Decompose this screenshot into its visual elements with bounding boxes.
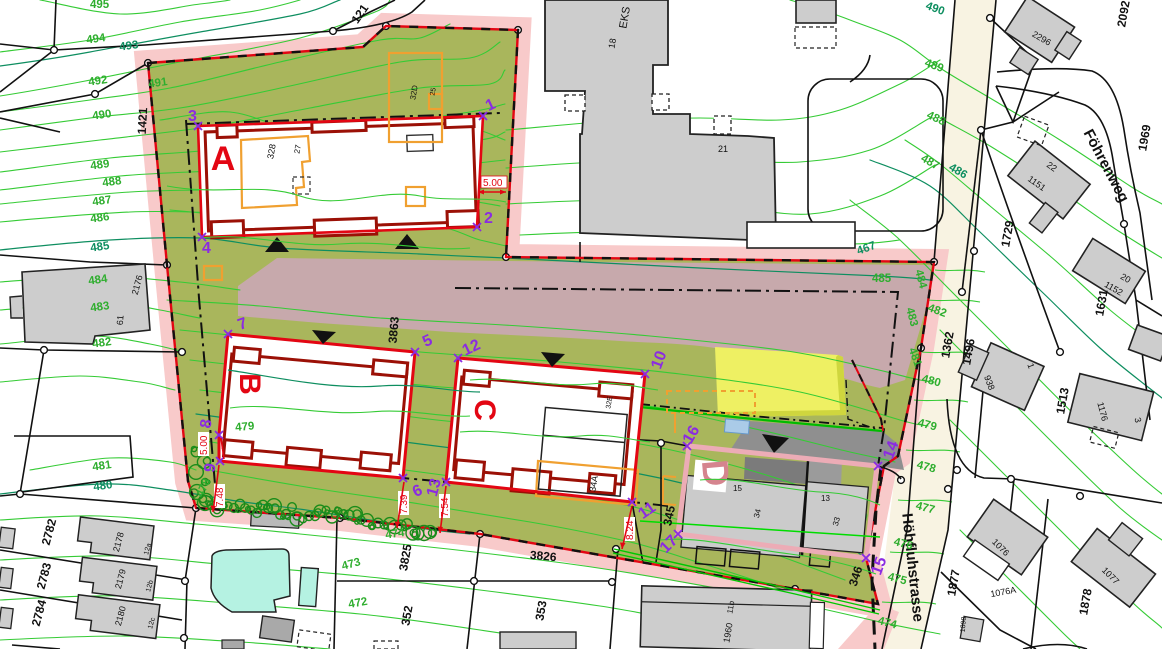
svg-text:3: 3 — [188, 108, 197, 125]
svg-text:2: 2 — [484, 210, 493, 227]
svg-text:5.00: 5.00 — [199, 435, 210, 455]
svg-text:A: A — [211, 140, 236, 178]
svg-text:18: 18 — [607, 38, 619, 50]
svg-text:1898: 1898 — [960, 616, 968, 632]
svg-text:479: 479 — [235, 420, 255, 434]
svg-text:7.48: 7.48 — [215, 487, 226, 507]
svg-text:5.00: 5.00 — [483, 178, 503, 189]
svg-text:3863: 3863 — [386, 316, 402, 344]
svg-text:25: 25 — [429, 87, 437, 96]
svg-text:1421: 1421 — [135, 107, 150, 135]
svg-text:495: 495 — [90, 0, 110, 11]
svg-text:D: D — [694, 458, 737, 488]
svg-text:13: 13 — [821, 494, 830, 503]
svg-text:4: 4 — [202, 240, 211, 257]
svg-text:15: 15 — [733, 484, 742, 493]
svg-text:21: 21 — [718, 144, 728, 154]
svg-text:485: 485 — [872, 273, 892, 285]
svg-text:C: C — [468, 399, 501, 421]
svg-text:3826: 3826 — [529, 548, 557, 564]
svg-text:B: B — [233, 373, 266, 395]
svg-text:61: 61 — [115, 315, 126, 326]
